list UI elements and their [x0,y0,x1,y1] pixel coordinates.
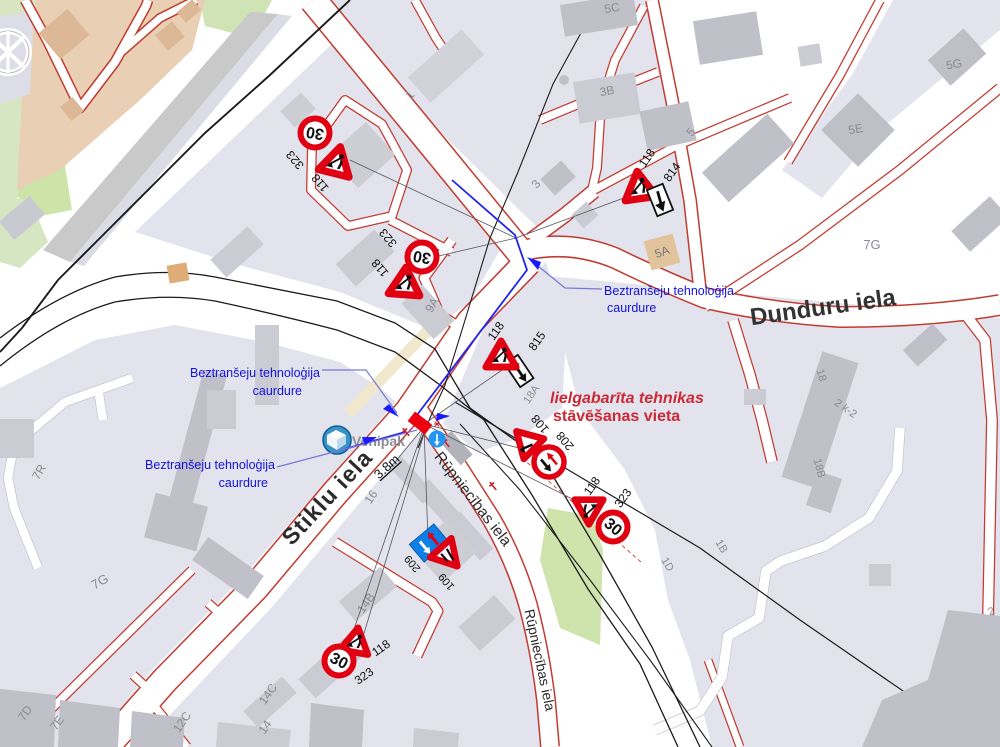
svg-text:caurdure: caurdure [219,476,268,490]
svg-text:5E: 5E [847,121,864,137]
svg-text:stāvēšanas vieta: stāvēšanas vieta [553,408,680,425]
svg-text:3B: 3B [599,83,616,99]
svg-text:Beztranšeju tehnoloģija: Beztranšeju tehnoloģija [145,458,275,472]
svg-text:lielgabarīta tehnikas: lielgabarīta tehnikas [550,390,704,407]
svg-text:30: 30 [305,123,326,143]
svg-text:5C: 5C [603,0,621,16]
svg-text:caurdure: caurdure [607,301,656,315]
svg-text:5G: 5G [945,56,963,73]
svg-text:7G: 7G [863,237,880,252]
svg-text:caurdure: caurdure [253,384,302,398]
svg-text:Beztranšeju tehnoloģija: Beztranšeju tehnoloģija [190,366,320,380]
svg-text:30: 30 [412,247,433,267]
svg-text:Beztranšeju tehnoloģija: Beztranšeju tehnoloģija [604,284,734,298]
